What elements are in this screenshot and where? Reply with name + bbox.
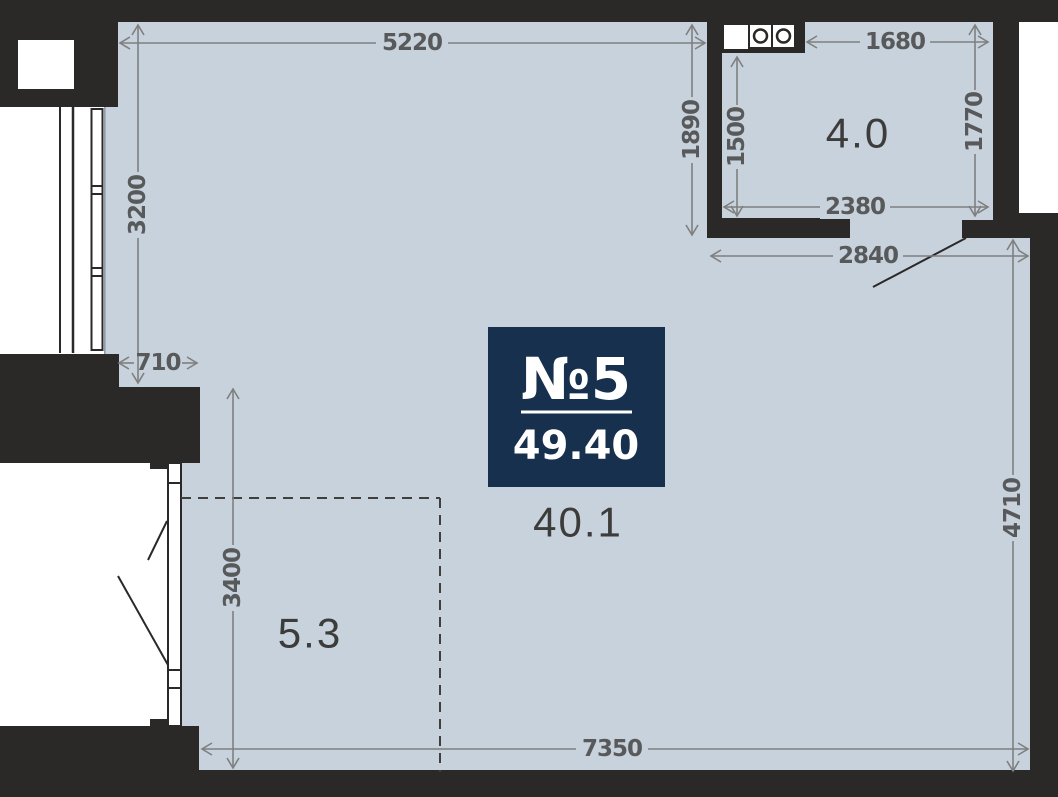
door-frame — [168, 463, 181, 726]
burner-icon-2 — [777, 30, 790, 43]
wall-left-middle-block — [0, 387, 200, 463]
entrance-exterior — [0, 463, 168, 726]
unit-total-area: 49.40 — [513, 423, 640, 469]
dimension-label: 5220 — [382, 30, 442, 56]
dimension-label: 710 — [135, 350, 180, 376]
dimension-label: 4710 — [1000, 478, 1026, 538]
wall-kitchen-bottom — [707, 218, 850, 238]
dimension-label: 1500 — [724, 107, 750, 167]
burner-icon-1 — [754, 30, 767, 43]
floor-plan-svg: 5220 1680 1890 1500 1770 2380 — [0, 0, 1058, 797]
wall-right — [1030, 238, 1058, 797]
window-frame — [92, 109, 103, 350]
balcony-exterior — [0, 107, 104, 354]
floor-plan-page: 5220 1680 1890 1500 1770 2380 — [0, 0, 1058, 797]
door-jamb-bottom — [150, 719, 168, 727]
sink-icon — [724, 25, 748, 49]
dimension-label: 2840 — [838, 243, 898, 269]
wall-top — [0, 0, 1058, 22]
wall-kitchen-right — [993, 0, 1019, 213]
hall-area-label: 5.3 — [278, 610, 342, 657]
dimension-label: 3400 — [220, 548, 246, 608]
entrance-door — [0, 461, 181, 727]
exterior-notch — [1019, 22, 1058, 213]
dimension-label: 1680 — [865, 29, 925, 55]
wall-door-stub — [962, 220, 1032, 238]
wall-bottom — [199, 770, 1058, 797]
dimension-label: 1770 — [962, 92, 988, 152]
dimension-label: 2380 — [825, 194, 885, 220]
dimension-label: 7350 — [582, 736, 642, 762]
dimension-label: 1890 — [679, 100, 705, 160]
unit-badge: №5 49.40 — [488, 327, 665, 487]
shaft-opening — [18, 40, 74, 89]
dimension-label: 3200 — [125, 175, 151, 235]
wall-bottom-left-block — [0, 726, 199, 797]
window-zone — [0, 107, 105, 354]
door-jamb-top — [150, 461, 168, 469]
unit-number: №5 — [521, 345, 631, 413]
kitchen-area-label: 4.0 — [826, 110, 890, 157]
main-area-label: 40.1 — [533, 499, 623, 546]
wall-left-step — [0, 354, 119, 387]
